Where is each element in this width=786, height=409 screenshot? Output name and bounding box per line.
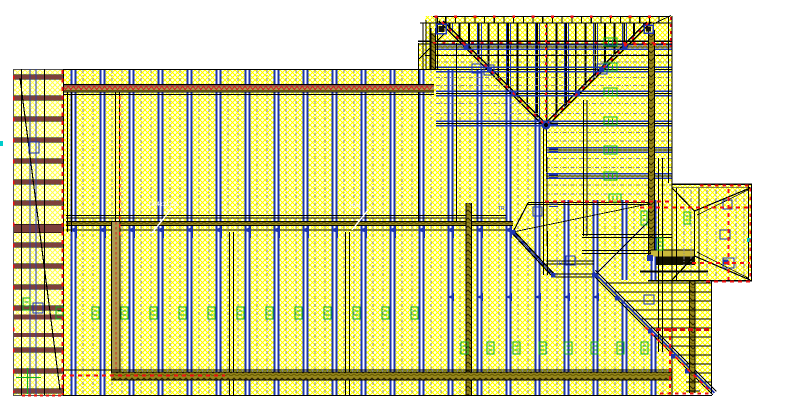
svg-text:13/4: 13/4 [349,204,361,210]
svg-text:TR: TR [498,206,505,212]
svg-text:TR: TR [556,261,563,267]
svg-text:13/4x117/8: 13/4x117/8 [148,202,178,208]
